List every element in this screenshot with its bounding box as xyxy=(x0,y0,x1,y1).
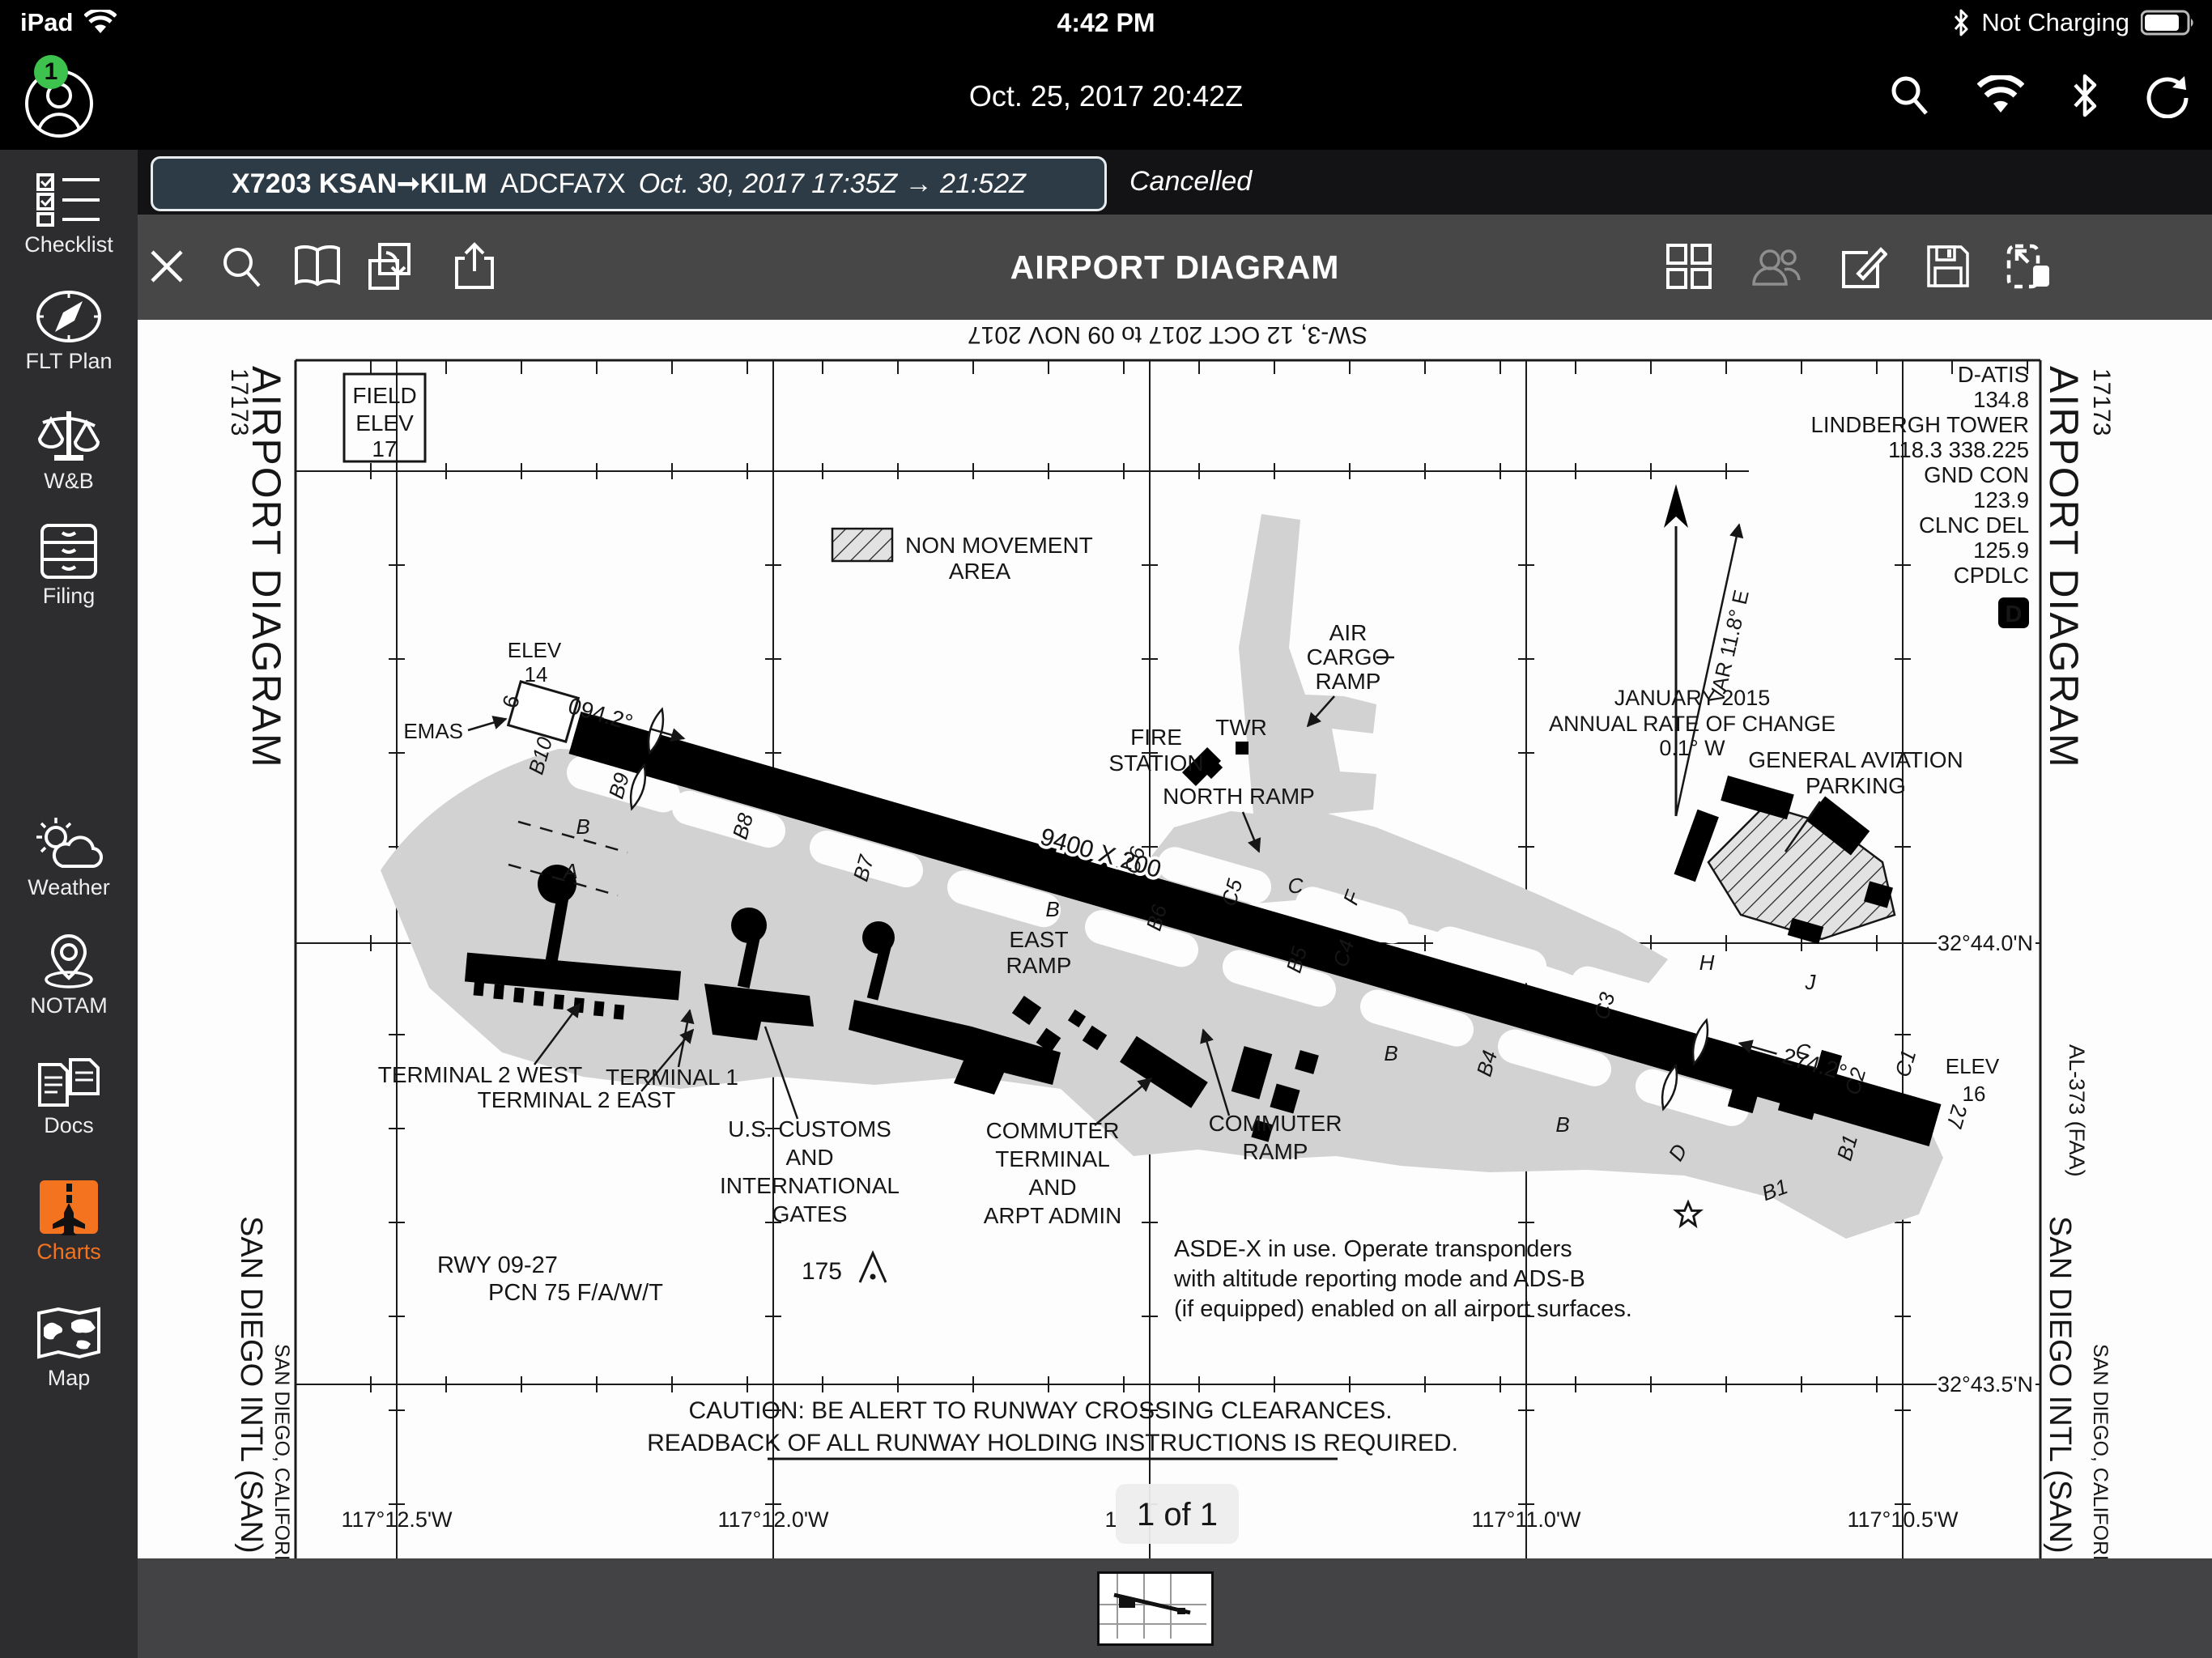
sidebar-item-docs[interactable]: Docs xyxy=(0,1053,138,1138)
svg-text:GND CON: GND CON xyxy=(1924,462,2029,487)
page-indicator: 1 of 1 xyxy=(1116,1484,1239,1544)
search-chart-icon[interactable] xyxy=(212,237,270,295)
effective-dates: SW-3, 12 OCT 2017 to 09 NOV 2017 xyxy=(968,321,1368,348)
svg-text:AREA: AREA xyxy=(949,559,1011,584)
svg-text:1: 1 xyxy=(1104,1507,1117,1532)
svg-text:FIELD: FIELD xyxy=(352,383,416,408)
utc-datetime: Oct. 25, 2017 20:42Z xyxy=(0,79,2212,113)
tower-symbol xyxy=(1236,742,1249,755)
taxiway-label: H xyxy=(1699,950,1715,975)
svg-text:17173: 17173 xyxy=(2088,368,2115,436)
taxiway-label: J xyxy=(1805,970,1817,994)
flight-status: Cancelled xyxy=(1129,156,1252,206)
sidebar-item-weather[interactable]: Weather xyxy=(0,815,138,900)
clock: 4:42 PM xyxy=(0,8,2212,38)
taxiway-label: B xyxy=(576,814,589,839)
svg-text:ELEV: ELEV xyxy=(355,410,414,436)
flight-summary-button[interactable]: X7203 KSAN➞KILM ADCFA7X Oct. 30, 2017 17… xyxy=(151,156,1107,211)
sidebar-item-checklist[interactable]: Checklist xyxy=(0,172,138,257)
svg-text:NORTH RAMP: NORTH RAMP xyxy=(1163,784,1315,809)
bluetooth-nav-icon[interactable] xyxy=(2071,74,2099,117)
svg-text:READBACK OF ALL RUNWAY HOLDING: READBACK OF ALL RUNWAY HOLDING INSTRUCTI… xyxy=(647,1430,1458,1456)
svg-text:175: 175 xyxy=(802,1258,842,1285)
svg-text:D-ATIS: D-ATIS xyxy=(1958,362,2029,387)
flight-strip: X7203 KSAN➞KILM ADCFA7X Oct. 30, 2017 17… xyxy=(138,150,2212,215)
svg-text:with altitude reporting mode a: with altitude reporting mode and ADS-B xyxy=(1173,1266,1585,1292)
scales-icon xyxy=(34,409,104,464)
svg-text:134.8: 134.8 xyxy=(1973,387,2029,412)
svg-text:123.9: 123.9 xyxy=(1973,487,2029,512)
drawers-icon xyxy=(34,524,104,579)
svg-text:TERMINAL 2 WEST: TERMINAL 2 WEST xyxy=(378,1062,583,1087)
svg-text:TERMINAL: TERMINAL xyxy=(995,1146,1110,1171)
svg-text:ANNUAL RATE OF CHANGE: ANNUAL RATE OF CHANGE xyxy=(1549,712,1836,736)
svg-text:AL-373 (FAA): AL-373 (FAA) xyxy=(2065,1044,2089,1177)
shared-users-icon[interactable] xyxy=(1747,237,1806,295)
svg-text:118.3 338.225: 118.3 338.225 xyxy=(1888,437,2029,462)
svg-text:D: D xyxy=(2006,602,2023,627)
binder-icon[interactable] xyxy=(288,237,347,295)
svg-text:JANUARY 2015: JANUARY 2015 xyxy=(1614,686,1771,710)
svg-text:EMAS: EMAS xyxy=(403,719,463,743)
nav-row: 1 Oct. 25, 2017 20:42Z xyxy=(0,50,2212,150)
svg-text:RWY 09-27: RWY 09-27 xyxy=(437,1252,558,1278)
svg-text:LINDBERGH TOWER: LINDBERGH TOWER xyxy=(1811,412,2029,437)
annotate-icon[interactable] xyxy=(1835,237,1893,295)
svg-text:INTERNATIONAL: INTERNATIONAL xyxy=(720,1173,900,1198)
svg-text:AND: AND xyxy=(785,1145,833,1170)
svg-text:FIRE: FIRE xyxy=(1130,725,1182,750)
taxiway-label: B xyxy=(1384,1041,1397,1065)
sidebar-item-charts[interactable]: Charts xyxy=(0,1180,138,1265)
taxiway-label: A xyxy=(562,859,577,883)
route-code: ADCFA7X xyxy=(500,168,626,200)
svg-text:NON MOVEMENT: NON MOVEMENT xyxy=(905,533,1093,558)
svg-text:RAMP: RAMP xyxy=(1243,1139,1308,1164)
svg-text:117°11.0'W: 117°11.0'W xyxy=(1471,1507,1581,1532)
sidebar-item-filing[interactable]: Filing xyxy=(0,524,138,609)
send-to-icon[interactable] xyxy=(364,237,423,295)
svg-text:CLNC DEL: CLNC DEL xyxy=(1919,512,2029,538)
star-symbol xyxy=(1676,1202,1700,1226)
svg-text:TWR: TWR xyxy=(1215,715,1267,740)
refresh-icon[interactable] xyxy=(2146,73,2191,118)
svg-text:14: 14 xyxy=(525,662,548,687)
save-icon[interactable] xyxy=(1919,237,1977,295)
svg-text:RAMP: RAMP xyxy=(1006,953,1072,978)
svg-text:27: 27 xyxy=(1942,1102,1972,1132)
svg-text:SAN DIEGO INTL (SAN): SAN DIEGO INTL (SAN) xyxy=(234,1216,268,1554)
svg-text:U.S. CUSTOMS: U.S. CUSTOMS xyxy=(728,1116,891,1141)
charts-icon xyxy=(34,1180,104,1235)
page-thumbnail[interactable] xyxy=(1097,1571,1214,1646)
svg-text:SAN DIEGO, CALIFORNIA: SAN DIEGO, CALIFORNIA xyxy=(2089,1344,2112,1558)
svg-text:0.1° W: 0.1° W xyxy=(1659,736,1725,760)
svg-text:117°12.5'W: 117°12.5'W xyxy=(341,1507,453,1532)
ga-parking xyxy=(1674,776,1895,944)
svg-text:32°44.0'N: 32°44.0'N xyxy=(1938,931,2033,955)
svg-text:PCN 75 F/A/W/T: PCN 75 F/A/W/T xyxy=(488,1280,663,1306)
svg-text:AND: AND xyxy=(1028,1175,1076,1200)
sidebar-item-flt-plan[interactable]: FLT Plan xyxy=(0,289,138,374)
svg-text:STATION: STATION xyxy=(1108,750,1203,776)
apron-areas xyxy=(381,514,1943,1239)
svg-text:GATES: GATES xyxy=(772,1201,848,1226)
svg-text:TERMINAL 1: TERMINAL 1 xyxy=(606,1065,738,1090)
sidebar-item-notam[interactable]: NOTAM xyxy=(0,933,138,1018)
svg-text:1 of 1: 1 of 1 xyxy=(1137,1497,1218,1533)
docs-icon xyxy=(34,1053,104,1108)
svg-text:TERMINAL 2 EAST: TERMINAL 2 EAST xyxy=(478,1087,676,1112)
checklist-icon xyxy=(34,172,104,227)
taxiway-label: C xyxy=(1796,1039,1811,1064)
svg-text:32°43.5'N: 32°43.5'N xyxy=(1938,1372,2033,1397)
taxiway-label: B xyxy=(1045,897,1059,921)
status-bar: iPad 4:42 PM Not Charging xyxy=(0,0,2212,50)
sidebar-item-map[interactable]: Map xyxy=(0,1306,138,1391)
svg-text:(if equipped) enabled on all a: (if equipped) enabled on all airport sur… xyxy=(1174,1296,1632,1322)
svg-text:AIRPORT DIAGRAM: AIRPORT DIAGRAM xyxy=(244,366,289,769)
taxiway-label: C1 xyxy=(1890,1047,1921,1079)
asdex-note: ASDE-X in use. Operate transponders with… xyxy=(1173,1236,1632,1322)
svg-text:ASDE-X in use. Operate transpo: ASDE-X in use. Operate transponders xyxy=(1174,1236,1572,1262)
sidebar: Checklist FLT Plan W&B Filing Weather NO… xyxy=(0,150,138,1658)
svg-text:GENERAL AVIATION: GENERAL AVIATION xyxy=(1748,747,1963,772)
chart-toolbar: AIRPORT DIAGRAM xyxy=(138,215,2212,320)
field-elev-box: FIELD ELEV 17 xyxy=(344,374,425,461)
svg-text:RAMP: RAMP xyxy=(1316,669,1381,694)
flight-id: X7203 KSAN➞KILM xyxy=(232,168,487,200)
svg-text:SAN DIEGO INTL (SAN): SAN DIEGO INTL (SAN) xyxy=(2043,1216,2077,1554)
svg-text:AIR: AIR xyxy=(1329,620,1368,645)
caution-note: CAUTION: BE ALERT TO RUNWAY CROSSING CLE… xyxy=(647,1397,1458,1459)
wifi-status-icon[interactable] xyxy=(1977,75,2024,116)
taxiway-label: B xyxy=(1555,1112,1569,1137)
compass-icon xyxy=(34,289,104,344)
non-movement-legend: NON MOVEMENT AREA xyxy=(832,529,1093,584)
svg-text:125.9: 125.9 xyxy=(1973,538,2029,563)
grid-view-icon[interactable] xyxy=(1660,237,1718,295)
svg-text:SAN DIEGO, CALIFORNIA: SAN DIEGO, CALIFORNIA xyxy=(270,1344,293,1558)
search-icon[interactable] xyxy=(1888,74,1930,117)
svg-text:ELEV: ELEV xyxy=(508,638,562,662)
svg-text:CAUTION: BE ALERT TO RUNWAY CR: CAUTION: BE ALERT TO RUNWAY CROSSING CLE… xyxy=(688,1397,1392,1424)
variation-arrows: VAR 11.8° E xyxy=(1664,484,1754,816)
charging-label: Not Charging xyxy=(1981,8,2129,37)
map-icon xyxy=(34,1306,104,1361)
airport-diagram-svg: SW-3, 12 OCT 2017 to 09 NOV 2017 17173 A… xyxy=(138,320,2212,1558)
svg-text:16: 16 xyxy=(1963,1082,1986,1106)
close-icon[interactable] xyxy=(138,237,196,295)
flight-times: Oct. 30, 2017 17:35Z → 21:52Z xyxy=(639,168,1026,200)
svg-text:CPDLC: CPDLC xyxy=(1954,563,2029,588)
pin-icon xyxy=(34,933,104,988)
sidebar-item-wb[interactable]: W&B xyxy=(0,409,138,494)
svg-text:ARPT ADMIN: ARPT ADMIN xyxy=(984,1203,1122,1228)
weather-icon xyxy=(34,815,104,870)
svg-text:117°10.5'W: 117°10.5'W xyxy=(1847,1507,1959,1532)
airport-diagram-page[interactable]: SW-3, 12 OCT 2017 to 09 NOV 2017 17173 A… xyxy=(138,320,2212,1558)
svg-text:EAST: EAST xyxy=(1009,927,1068,952)
svg-text:17: 17 xyxy=(372,436,397,461)
taxiway-label: C xyxy=(1288,874,1304,898)
svg-text:AIRPORT DIAGRAM: AIRPORT DIAGRAM xyxy=(2041,366,2087,769)
svg-text:ELEV: ELEV xyxy=(1946,1054,2000,1078)
thumbnail-bar xyxy=(138,1558,2212,1658)
share-icon[interactable] xyxy=(445,237,504,295)
battery-icon xyxy=(2141,9,2196,36)
svg-text:PARKING: PARKING xyxy=(1806,773,1906,798)
bluetooth-icon xyxy=(1952,9,1970,36)
svg-text:117°12.0'W: 117°12.0'W xyxy=(717,1507,829,1532)
fullscreen-icon[interactable] xyxy=(2000,237,2058,295)
frequency-block: D-ATIS134.8 LINDBERGH TOWER118.3 338.225… xyxy=(1811,362,2029,628)
